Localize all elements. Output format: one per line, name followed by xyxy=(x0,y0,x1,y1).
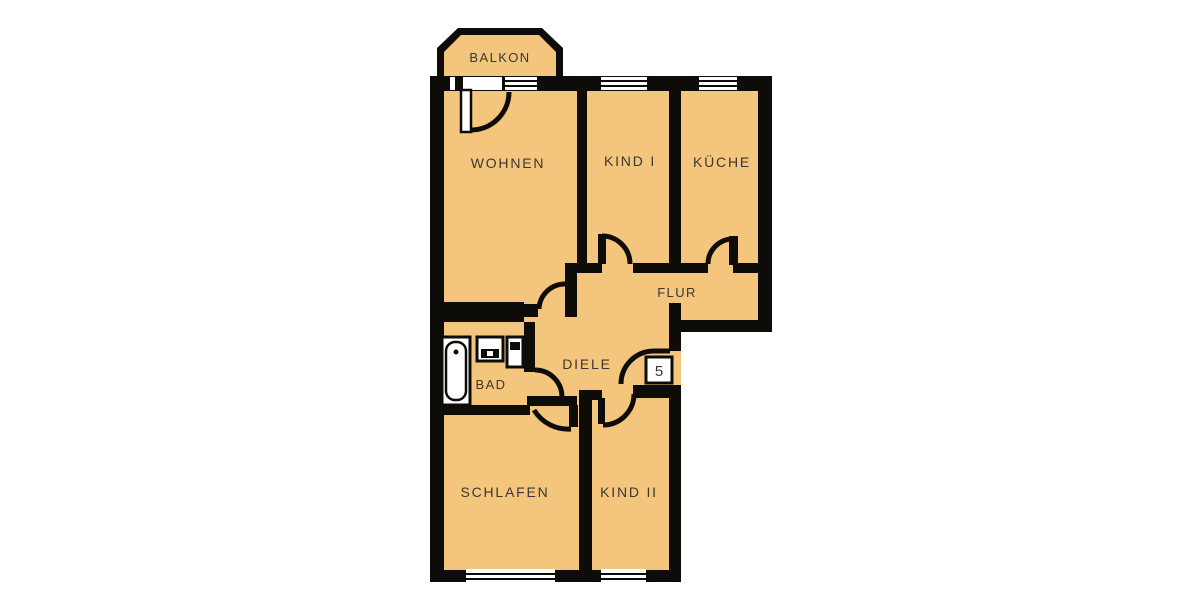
window-kueche xyxy=(699,77,737,90)
window-schlafen xyxy=(466,569,555,583)
room-label-schlafen: SCHLAFEN xyxy=(460,484,549,500)
room-label-balkon: BALKON xyxy=(469,50,530,65)
upper-floor-area xyxy=(430,76,772,332)
room-label-kind2: KIND II xyxy=(600,484,658,500)
room-label-diele: DIELE xyxy=(562,356,611,372)
room-label-wohnen: WOHNEN xyxy=(471,155,546,171)
toilet xyxy=(507,337,523,367)
room-label-kueche: KÜCHE xyxy=(693,153,751,170)
room-label-bad: BAD xyxy=(476,377,507,392)
floor-plan-canvas: 5 BALKON WOHNEN KIND I KÜCHE FLUR DIELE … xyxy=(0,0,1200,600)
sink xyxy=(477,337,503,361)
window-kind1 xyxy=(601,77,647,90)
entrance-unit-badge: 5 xyxy=(646,357,672,383)
floor-plan-svg: 5 BALKON WOHNEN KIND I KÜCHE FLUR DIELE … xyxy=(0,0,1200,600)
room-label-flur: FLUR xyxy=(657,285,697,300)
bathtub xyxy=(442,337,470,405)
entrance-unit-number: 5 xyxy=(655,363,663,380)
window-kind2 xyxy=(601,569,646,583)
room-label-kind1: KIND I xyxy=(604,153,656,169)
window-wohnen xyxy=(505,77,537,90)
